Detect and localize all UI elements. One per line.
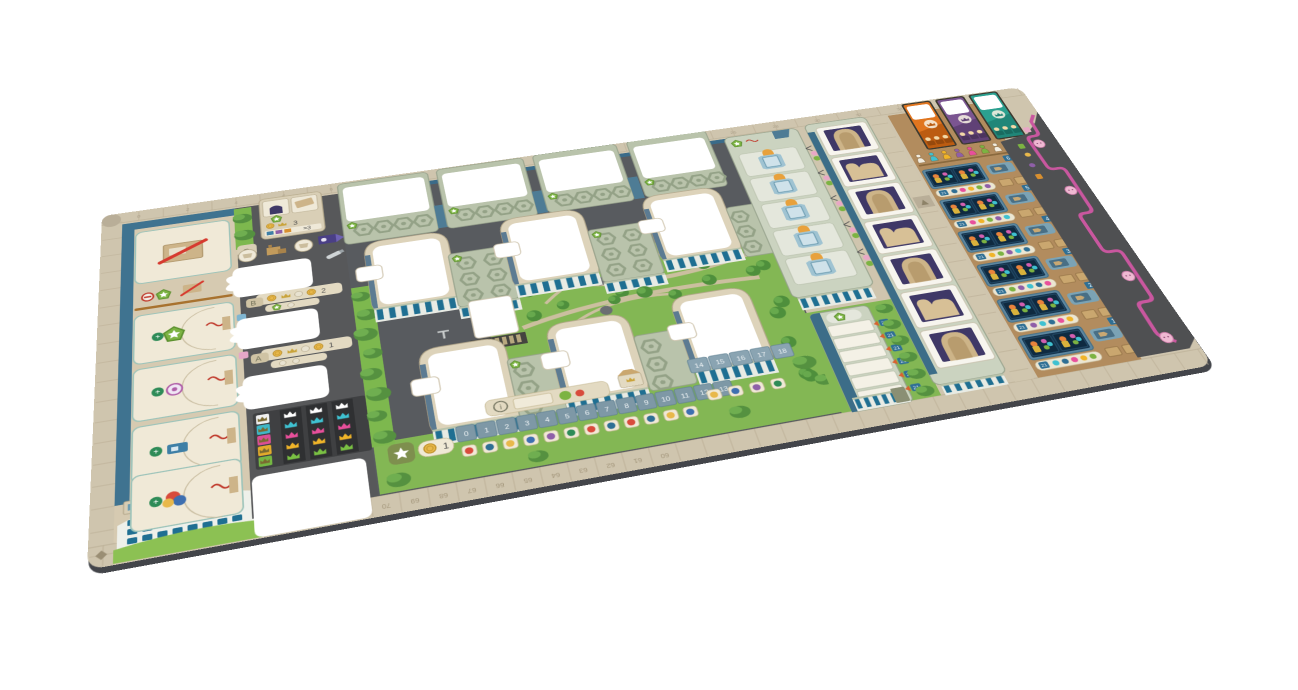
svg-text:+: + (153, 498, 159, 507)
svg-text:4: 4 (234, 201, 238, 206)
svg-text:+: + (153, 448, 159, 456)
svg-text:2: 2 (186, 207, 190, 212)
svg-text:+: + (155, 389, 161, 397)
svg-text:3: 3 (293, 220, 298, 226)
svg-text:0: 0 (137, 214, 141, 219)
svg-text:8: 8 (329, 187, 333, 192)
svg-text:+: + (155, 334, 160, 341)
